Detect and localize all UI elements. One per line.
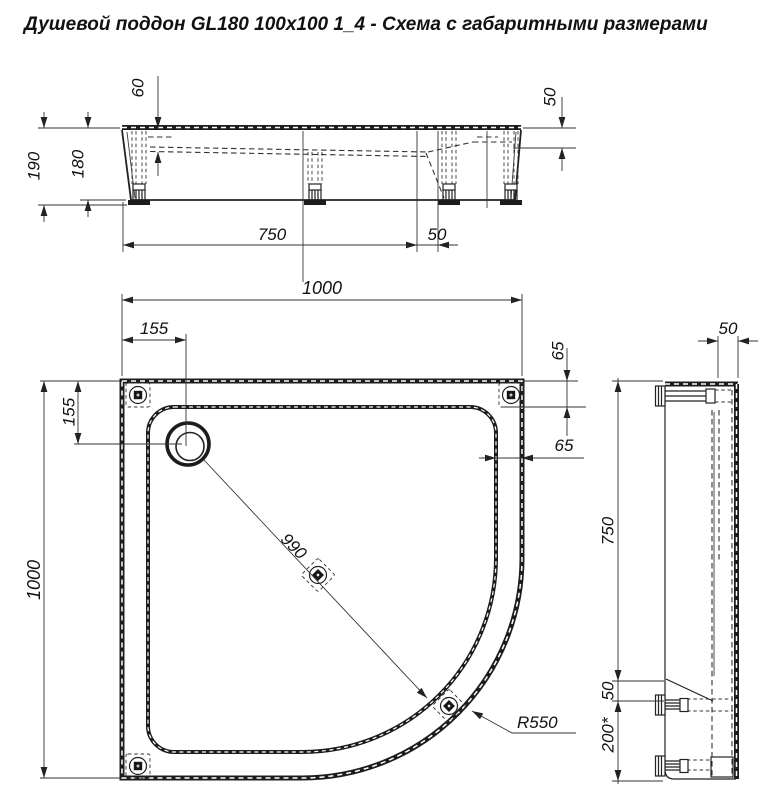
fastener-icon-top-left [126, 383, 150, 407]
dim-label-65-vertical: 65 [548, 341, 567, 360]
dim-label-65-horizontal: 65 [555, 436, 574, 455]
side-hidden-lines [712, 390, 732, 776]
dim-label-1000-top: 1000 [302, 278, 342, 298]
dim-label-190: 190 [24, 151, 43, 180]
plan-outer-edge [122, 381, 522, 778]
dim-label-r550: R550 [517, 713, 558, 732]
fastener-icon-bottom-left [126, 754, 150, 778]
plan-diagonal-dimension: 990 [204, 460, 429, 700]
dim-label-50-top-right: 50 [540, 87, 559, 106]
dim-label-1000-left: 1000 [24, 560, 44, 600]
dim-label-50-side-middle: 50 [598, 681, 617, 700]
side-view: 50 750 50 200* [598, 319, 758, 784]
dim-label-50-side-top: 50 [719, 319, 738, 338]
fastener-icon-center [301, 558, 335, 592]
side-foot-middle [656, 695, 689, 715]
front-view: 190 180 60 50 750 50 [24, 76, 576, 282]
dim-label-200-starred: 200* [598, 716, 617, 753]
technical-drawing: 190 180 60 50 750 50 [0, 0, 777, 800]
dim-label-750-front: 750 [258, 225, 287, 244]
plan-view: 990 R550 [24, 278, 586, 778]
plan-inner-rim [148, 407, 496, 752]
front-dimensions: 190 180 60 50 750 50 [24, 76, 576, 252]
fastener-icon-top-right [499, 383, 523, 407]
fastener-icon-arc [432, 689, 466, 723]
front-legs [128, 131, 522, 205]
side-foot-top [656, 386, 733, 406]
dim-label-50-bottom: 50 [428, 225, 447, 244]
dim-label-155-horizontal: 155 [140, 319, 169, 338]
side-foot-bottom [656, 756, 689, 776]
drawing-page: Душевой поддон GL180 100х100 1_4 - Схема… [0, 0, 777, 800]
dim-label-180: 180 [68, 149, 87, 178]
front-hidden-lines [148, 137, 512, 198]
radius-callout: R550 [470, 708, 576, 733]
plan-dimensions: 1000 155 155 1000 65 65 [24, 278, 586, 778]
dim-label-750-side: 750 [598, 516, 617, 545]
dim-label-60: 60 [128, 78, 147, 97]
dim-label-990: 990 [277, 530, 311, 564]
dim-label-155-vertical: 155 [59, 397, 78, 426]
